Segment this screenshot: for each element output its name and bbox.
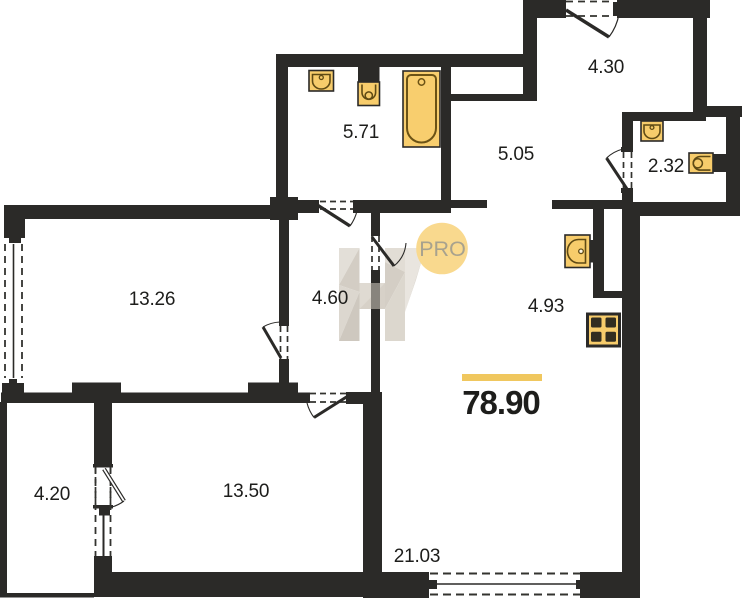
- svg-text:13.50: 13.50: [223, 481, 270, 502]
- svg-text:5.05: 5.05: [498, 144, 534, 165]
- svg-text:4.60: 4.60: [312, 288, 348, 309]
- svg-text:PRO: PRO: [419, 237, 466, 261]
- svg-text:4.30: 4.30: [588, 57, 624, 78]
- svg-text:78.90: 78.90: [462, 384, 540, 421]
- svg-text:5.71: 5.71: [343, 122, 379, 143]
- svg-text:2.32: 2.32: [648, 156, 684, 177]
- svg-text:21.03: 21.03: [394, 546, 441, 567]
- svg-text:4.93: 4.93: [528, 296, 564, 317]
- svg-text:13.26: 13.26: [129, 289, 176, 310]
- svg-text:4.20: 4.20: [34, 484, 70, 505]
